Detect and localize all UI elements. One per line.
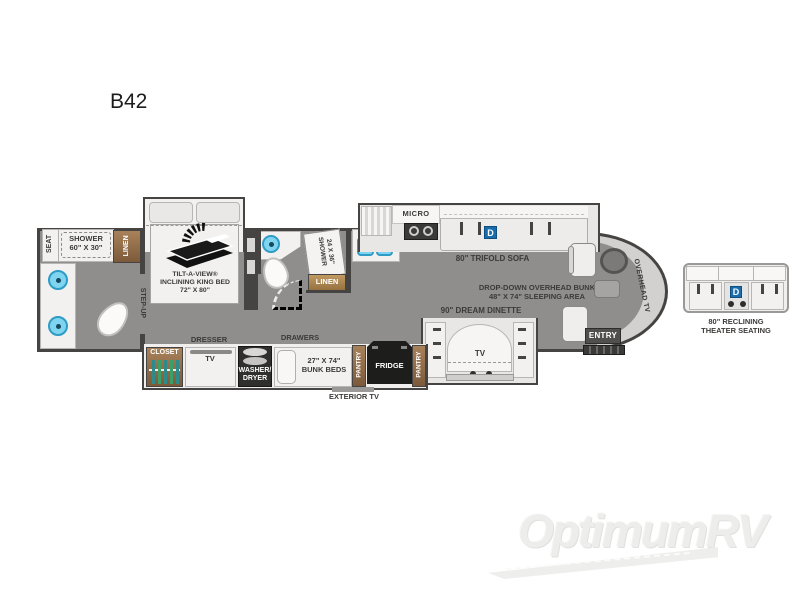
dinette-booth-left-seam-1 xyxy=(433,328,441,331)
washer-dryer-label-2: DRYER xyxy=(236,375,274,383)
hanger-icon xyxy=(152,360,155,384)
theater-seam-2 xyxy=(711,284,714,294)
dinette-booth-right-seam-1 xyxy=(518,328,526,331)
pantry-right-label: PANTRY xyxy=(415,344,422,386)
dresser-tv-label: TV xyxy=(200,355,220,363)
fridge-label: FRIDGE xyxy=(367,362,412,370)
watermark-logo: OptimumRV xyxy=(492,504,792,558)
dinette-booth-right-seam-3 xyxy=(518,356,526,359)
dinette-booth-left-seam-2 xyxy=(433,342,441,345)
midbath-wall-bottom xyxy=(306,290,351,293)
steering-wheel-icon xyxy=(600,248,628,274)
hanger-icon xyxy=(158,360,161,384)
theater-seat-left xyxy=(689,282,722,310)
rear-shower-divider xyxy=(58,230,59,261)
dinette-bench xyxy=(446,374,514,381)
theater-seam-3 xyxy=(761,284,764,294)
hanger-icon xyxy=(170,360,173,384)
bunk-pillow xyxy=(277,350,296,384)
closet-label: CLOSET xyxy=(146,349,183,357)
rear-sink-1-drain xyxy=(56,278,61,283)
bunk-name-label: BUNK BEDS xyxy=(298,366,350,374)
theater-cupholder-1 xyxy=(728,301,734,307)
washer-dryer-label-1: WASHER/ xyxy=(236,367,274,375)
sofa-backrest xyxy=(440,206,588,219)
fridge-handle-2 xyxy=(401,346,407,349)
dresser-label: DRESSER xyxy=(182,336,236,344)
hanger-icon xyxy=(164,360,167,384)
pantry-left-label: PANTRY xyxy=(355,344,362,386)
entry-steps xyxy=(583,345,625,355)
micro-label: MICRO xyxy=(394,210,438,218)
theater-label-2: THEATER SEATING xyxy=(688,327,784,335)
kitchen-slide-counter xyxy=(361,206,392,236)
hanger-icon xyxy=(176,360,179,384)
dinette-label: 90" DREAM DINETTE xyxy=(431,307,531,316)
dinette-tv-label: TV xyxy=(470,350,490,359)
sofa-slide-line xyxy=(444,214,584,215)
dinette-table xyxy=(447,324,512,372)
cooktop-burner-2 xyxy=(423,226,433,236)
midbath-wall-left xyxy=(257,230,261,274)
exterior-tv-label: EXTERIOR TV xyxy=(326,393,382,401)
sofa-seam-4 xyxy=(548,222,551,235)
theater-seat-right xyxy=(751,282,784,310)
theater-d-badge: D xyxy=(730,286,742,298)
dinette-booth-left-seam-3 xyxy=(433,356,441,359)
midbath-linen-label: LINEN xyxy=(308,278,346,286)
driver-seat-back xyxy=(568,246,574,274)
theater-seam-4 xyxy=(775,284,778,294)
rear-sink-2-drain xyxy=(56,324,61,329)
bed-label-2: INCLINING KING BED xyxy=(152,279,238,287)
dinette-booth-right-seam-2 xyxy=(518,342,526,345)
model-title: B42 xyxy=(110,90,147,114)
rear-linen-label: LINEN xyxy=(123,227,131,265)
floorplan: B42 SEAT SHOWER 60" X 30" LINEN STEP-UP … xyxy=(0,0,800,600)
bed-label-3: 72" X 80" xyxy=(152,287,238,295)
wardrobe-shelf-1 xyxy=(247,238,255,252)
sofa-d-badge: D xyxy=(484,226,497,239)
entry-label: ENTRY xyxy=(585,332,621,341)
midbath-wall-right xyxy=(346,230,351,292)
bed-pillow-left xyxy=(149,202,193,223)
washer-lid-2 xyxy=(243,357,267,365)
theater-backrest-seam-1 xyxy=(718,266,719,281)
sofa-seam-3 xyxy=(530,222,533,235)
theater-backrest xyxy=(686,266,786,281)
sofa-seam-2 xyxy=(478,222,481,235)
theater-seam-1 xyxy=(697,284,700,294)
midbath-sink-drain xyxy=(269,242,274,247)
cab-console xyxy=(594,280,620,298)
dinette-slide-line xyxy=(448,362,511,363)
rear-shower-size: 60" X 30" xyxy=(62,244,110,252)
washer-lid-1 xyxy=(243,348,267,356)
sofa-label: 80" TRIFOLD SOFA xyxy=(445,255,540,264)
king-bed-icon xyxy=(158,222,236,270)
sofa-seam-1 xyxy=(460,222,463,235)
rear-seat-label: SEAT xyxy=(46,224,54,264)
theater-cupholder-2 xyxy=(740,301,746,307)
theater-backrest-seam-2 xyxy=(753,266,754,281)
fridge-handle xyxy=(372,346,378,349)
bed-pillow-right xyxy=(196,202,240,223)
step-up-label: STEP-UP xyxy=(138,275,146,331)
drawers-label: DRAWERS xyxy=(278,334,322,342)
cooktop-burner-1 xyxy=(409,226,419,236)
bed-label-1: TILT-A-VIEW® xyxy=(152,271,238,279)
wardrobe-shelf-2 xyxy=(247,260,255,274)
dropdown-bunk-label-2: 48" X 74" SLEEPING AREA xyxy=(477,293,597,301)
